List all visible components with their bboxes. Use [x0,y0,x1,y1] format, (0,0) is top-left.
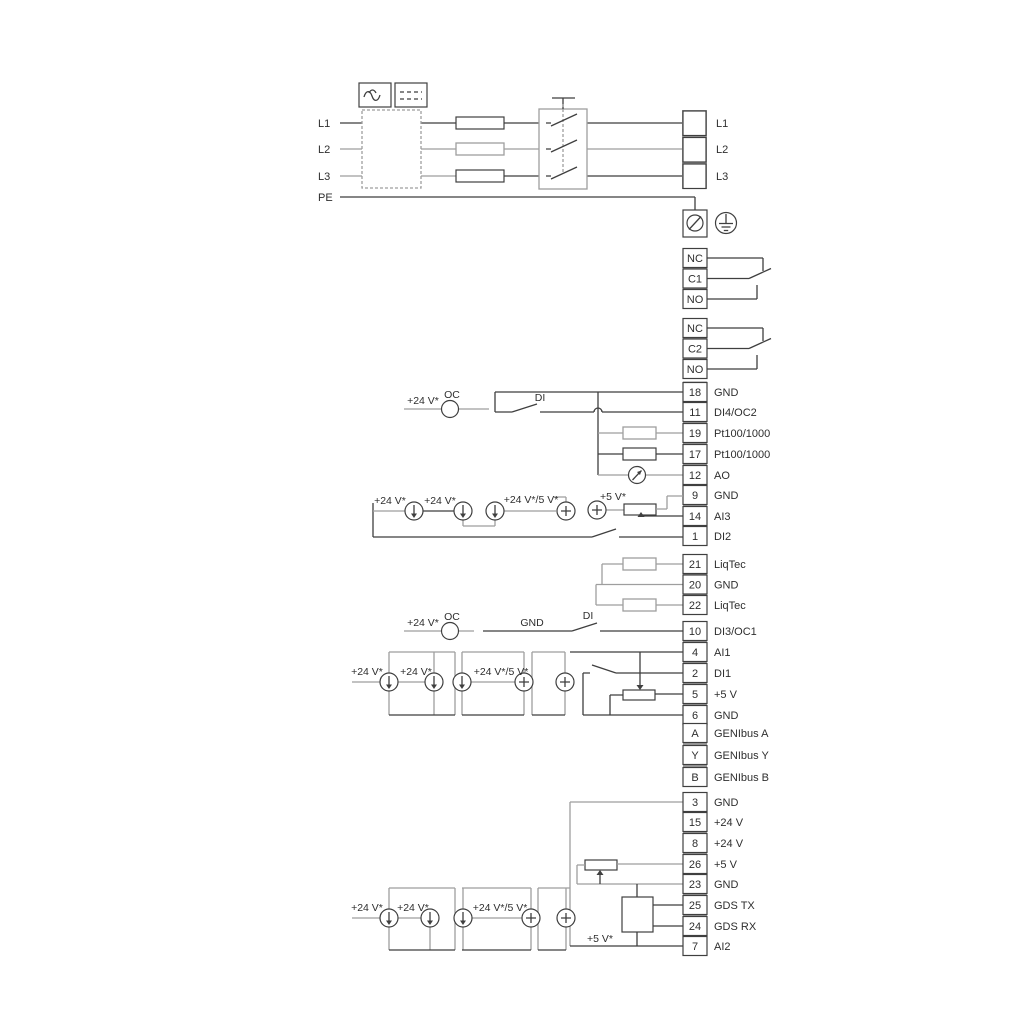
voltage-source-icon [588,501,606,519]
voltage-source-icon [556,673,574,691]
v24-label: +24 V* [407,395,439,407]
voltage-source-icon [557,502,575,520]
filter-box [362,110,421,188]
terminal-number: 24 [689,921,701,933]
io3-terminal-strip: 3 GND 15 +24 V 8 +24 V 26 +5 V 23 GND 25… [683,792,757,956]
terminal-number: 9 [692,490,698,502]
terminal-label: +5 V [714,689,738,701]
ai1-di1-wiring: +24 V* +24 V* +24 V*/5 V* [351,652,683,715]
terminal-label: Pt100/1000 [714,449,770,461]
terminal-label: GENIbus B [714,772,769,784]
relay1-section: NC C1 NO [683,248,771,309]
relay2-section: NC C2 NO [683,318,771,379]
liqtec-sensor-icon [623,599,656,611]
terminal-number: 5 [692,689,698,701]
terminal-label: GND [714,797,739,809]
terminal-number: 3 [692,797,698,809]
terminal-number: B [691,772,698,784]
terminal-label: GND [714,490,739,502]
di-label: DI [583,610,594,622]
current-sink-icon [405,502,423,520]
terminal-number: 26 [689,859,701,871]
mains-wires [340,123,695,210]
current-sink-icon [486,502,504,520]
terminal-number: 21 [689,559,701,571]
terminal-number: 11 [689,407,700,419]
output-l3-label: L3 [716,171,728,183]
v24-5-label: +24 V*/5 V* [504,494,559,506]
ac-symbol-icon [359,83,391,107]
relay2-no: NO [687,364,704,376]
current-sink-icon [454,909,472,927]
terminal-number: 20 [689,580,701,592]
potentiometer [624,504,656,515]
input-l1-label: L1 [318,118,330,130]
terminal-label: GND [714,580,739,592]
current-sink-icon [454,502,472,520]
v24-5-label: +24 V*/5 V* [473,902,528,914]
terminal-number: 10 [689,626,701,638]
terminal-label: AI3 [714,511,731,523]
terminal-label: AI1 [714,647,731,659]
io18-terminal-strip: 18 GND 11 DI4/OC2 19 Pt100/1000 17 Pt100… [683,382,770,546]
ai2-gds-wiring: +24 V* +24 V* +24 V*/5 V* +5 V* [351,802,683,950]
liqtec-sensor-icon [623,558,656,570]
liqtec-wiring [596,558,683,611]
terminal-label: GENIbus A [714,728,769,740]
output-terminal-block: L1 L2 L3 [682,110,728,189]
terminal-label: +24 V [714,838,744,850]
pt100-sensor-icon [623,427,656,439]
fuse-l3 [456,170,504,182]
relay1-no: NO [687,294,704,306]
terminal-label: AI2 [714,941,731,953]
relay2-nc: NC [687,323,703,335]
terminal-number: 25 [689,900,701,912]
terminal-label: DI4/OC2 [714,407,757,419]
relay1-c1: C1 [688,274,702,286]
mains-input-section: L1 L2 L3 PE [318,83,737,237]
di-label: DI [535,392,546,404]
terminal-number: 18 [689,387,701,399]
io10-terminal-strip: 10 DI3/OC1 4 AI1 2 DI1 5 +5 V 6 GND [683,621,757,725]
v24-label: +24 V* [374,495,406,507]
terminal-number: 19 [689,428,701,440]
terminal-number: Y [691,750,699,762]
terminal-number: 6 [692,710,698,722]
terminal-label: GDS RX [714,921,757,933]
pt1000-sensor-icon [623,448,656,460]
open-collector-icon [442,401,459,418]
fuse-l2 [456,143,504,155]
v24-5-label: +24 V*/5 V* [474,666,529,678]
terminal-label: DI2 [714,531,731,543]
terminal-number: 2 [692,668,698,680]
output-l1-label: L1 [716,118,728,130]
earth-ground-icon [716,213,737,234]
relay1-contact-icon [707,258,771,299]
terminal-label: LiqTec [714,600,746,612]
terminal-label: GND [714,879,739,891]
v24-label: +24 V* [351,902,383,914]
current-sink-icon [453,673,471,691]
terminal-number: 17 [689,449,701,461]
open-collector-icon [442,623,459,640]
ai3-di2-wiring: +24 V* +24 V* +24 V*/5 V* +5 V* [373,491,683,537]
terminal-label: Pt100/1000 [714,428,770,440]
terminal-number: 8 [692,838,698,850]
terminal-label: AO [714,470,730,482]
terminal-number: 4 [692,647,698,659]
terminal-number: 15 [689,817,701,829]
dc-symbol-icon [395,83,427,107]
di4-pt100-ao-wiring: +24 V* OC DI [404,389,683,484]
terminal-label: GND [714,387,739,399]
gnd-label: GND [520,617,544,629]
terminal-number: 23 [689,879,701,891]
wiring-diagram: L1 L2 L3 PE [0,0,1024,1024]
v24-label: +24 V* [351,666,383,678]
relay2-contact-icon [707,328,771,369]
oc-label: OC [444,611,460,623]
v5-label: +5 V* [587,933,613,945]
terminal-label: GDS TX [714,900,755,912]
terminal-label: DI3/OC1 [714,626,757,638]
v24-label: +24 V* [407,617,439,629]
terminal-label: GENIbus Y [714,750,769,762]
pe-screw-terminal-icon [683,210,707,237]
v5-label: +5 V* [600,491,626,503]
terminal-number: A [691,728,699,740]
voltage-source-icon [557,909,575,927]
terminal-number: 22 [689,600,701,612]
terminal-number: 12 [689,470,701,482]
disconnect-switch [539,98,587,189]
oc-label: OC [444,389,460,401]
analog-output-meter-icon [629,467,646,484]
v24-label: +24 V* [400,666,432,678]
v24-label: +24 V* [424,495,456,507]
potentiometer [585,860,617,870]
input-l3-label: L3 [318,171,330,183]
genibus-terminal-strip: A GENIbus A Y GENIbus Y B GENIbus B [683,723,769,787]
input-pe-label: PE [318,192,333,204]
terminal-number: 7 [692,941,698,953]
potentiometer [623,690,655,700]
output-l2-label: L2 [716,144,728,156]
liqtec-terminal-strip: 21 LiqTec 20 GND 22 LiqTec [683,554,746,615]
wiring-diagram-page: L1 L2 L3 PE [0,0,1024,1024]
terminal-label: GND [714,710,739,722]
input-l2-label: L2 [318,144,330,156]
relay2-c2: C2 [688,344,702,356]
relay1-nc: NC [687,253,703,265]
terminal-label: +5 V [714,859,738,871]
terminal-label: +24 V [714,817,744,829]
terminal-number: 14 [689,511,701,523]
terminal-number: 1 [692,531,698,543]
fuse-l1 [456,117,504,129]
di3-wiring: +24 V* OC GND DI [404,610,683,640]
terminal-label: DI1 [714,668,731,680]
gds-sensor-box [622,897,653,932]
terminal-label: LiqTec [714,559,746,571]
v24-label: +24 V* [397,902,429,914]
